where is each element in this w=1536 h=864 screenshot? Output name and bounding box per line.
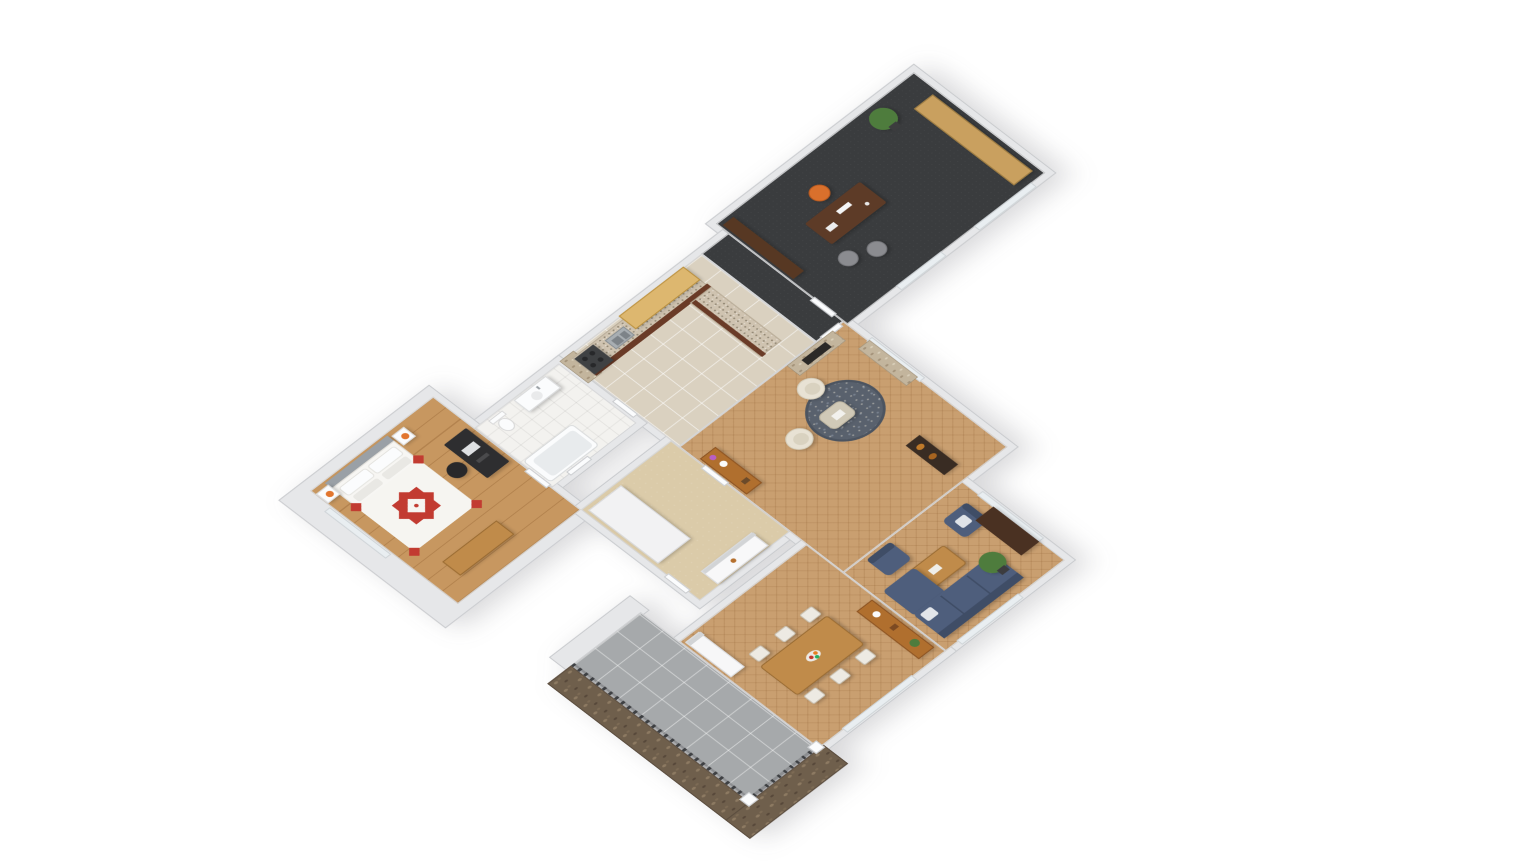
quilt-corner-1 bbox=[351, 503, 361, 511]
barrel-chair-1-seat bbox=[801, 380, 823, 397]
vanity-sink bbox=[529, 389, 545, 402]
burner-3 bbox=[589, 362, 597, 368]
hall-cabinet-decor bbox=[729, 557, 737, 563]
bedroom-desk-book bbox=[476, 453, 490, 464]
console-plant bbox=[907, 637, 922, 648]
sofa-cushion-gap-1 bbox=[940, 595, 965, 614]
sofa-pillow-1 bbox=[920, 606, 940, 621]
bedroom-laptop bbox=[461, 441, 481, 456]
sofa-cushion-gap-2 bbox=[966, 575, 991, 594]
buffet-bowl bbox=[741, 477, 751, 485]
desk-monitor bbox=[836, 202, 852, 215]
lamp-orange-east bbox=[400, 432, 411, 441]
burner-2 bbox=[588, 350, 596, 356]
coffee-table-decor bbox=[928, 564, 943, 575]
barrel-chair-2-seat bbox=[790, 431, 812, 448]
console-vase bbox=[871, 610, 882, 619]
quilt-corner-4 bbox=[471, 500, 481, 508]
isometric-plan-scene bbox=[31, 0, 1536, 864]
quilt-corner-3 bbox=[409, 548, 419, 556]
lamp-orange-west bbox=[324, 490, 335, 499]
burner-4 bbox=[596, 356, 604, 362]
ottoman-tray bbox=[831, 409, 846, 420]
console-bowl bbox=[889, 623, 899, 631]
armchair-1-pillow bbox=[954, 514, 973, 528]
burner-1 bbox=[581, 356, 589, 362]
desk-papers bbox=[825, 222, 838, 232]
etagere-bowl-2 bbox=[927, 452, 938, 461]
quilt-corner-2 bbox=[413, 455, 423, 463]
desk-mug bbox=[864, 201, 871, 206]
buffet-vase bbox=[718, 459, 729, 468]
floor-plan-render bbox=[0, 0, 1536, 864]
buffet-orchid bbox=[708, 454, 718, 462]
etagere-bowl-1 bbox=[915, 442, 926, 451]
vanity-faucet bbox=[536, 386, 541, 390]
